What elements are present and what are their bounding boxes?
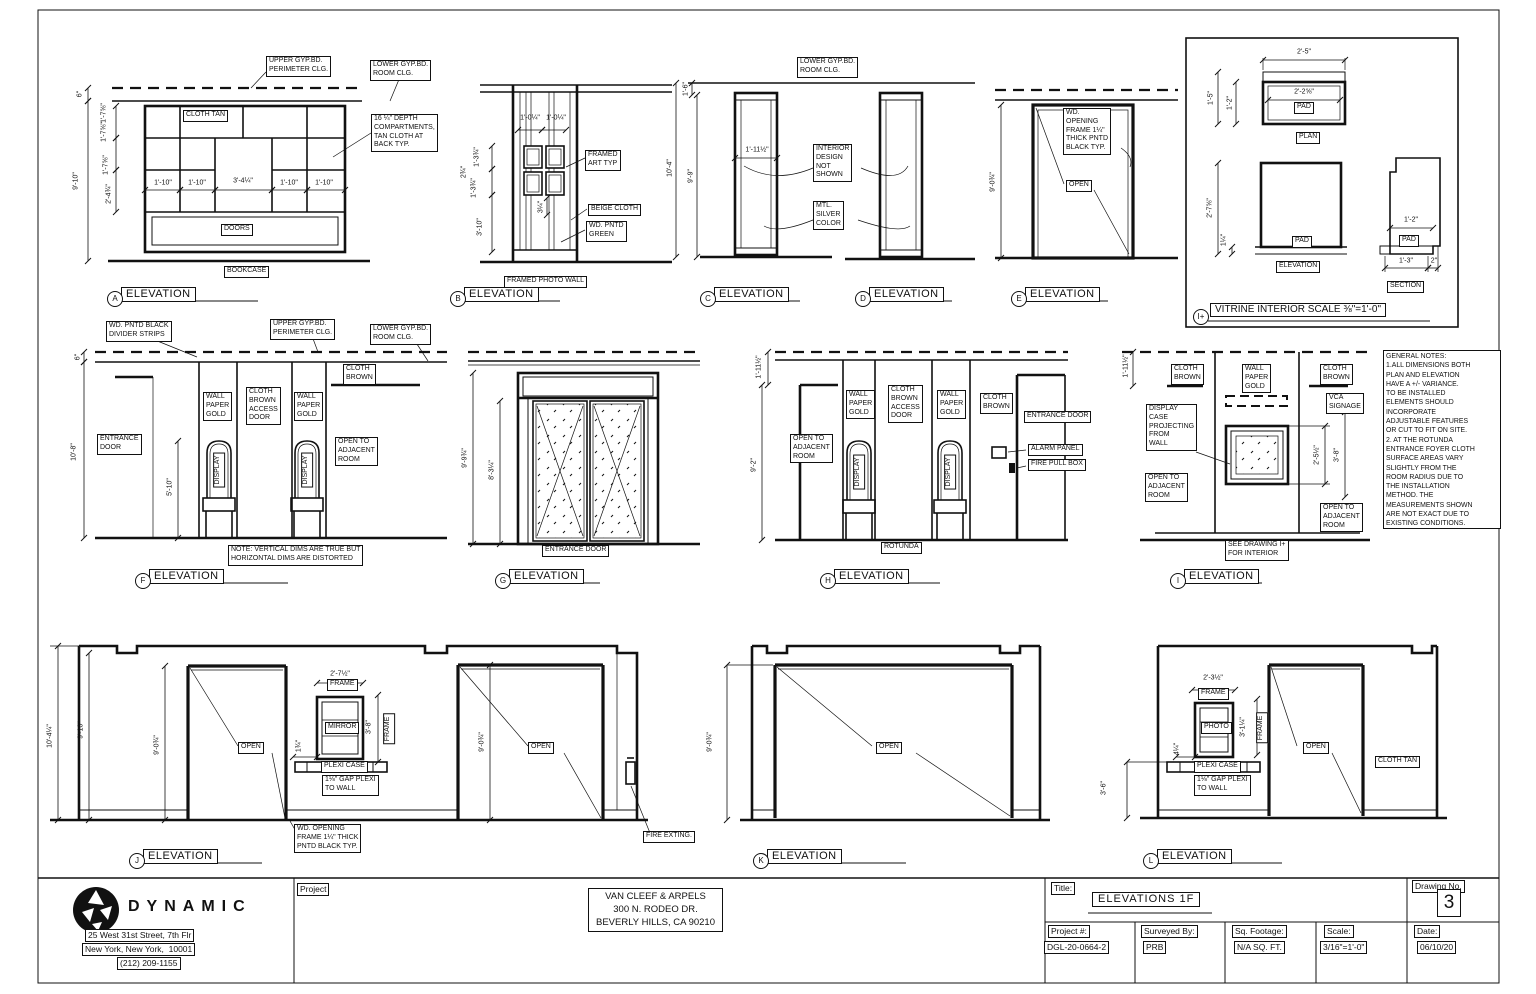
label-open-e: OPEN [1066,180,1092,192]
client-address: VAN CLEEF & ARPELS 300 N. RODEO DR. BEVE… [588,888,723,932]
dim-b-1-3b: 1'-3¾" [471,178,478,198]
dim-i-1-11: 1'-11½" [1123,354,1130,377]
dim-vit-1-2b: 1'-2" [1404,217,1418,224]
label-upper-gyp-f: UPPER GYP.BD. PERIMETER CLG. [270,319,335,340]
label-plan: PLAN [1296,132,1320,144]
dim-i-2-5: 2'-5½" [1314,445,1321,465]
dim-vit-1-2a: 1'-2" [1227,96,1234,110]
elevation-l-marker: L [1143,853,1159,869]
label-entrance-door-g: ENTRANCE DOOR [542,545,609,557]
elevation-k-marker: K [753,853,769,869]
dim-l-3-1: 3'-1¼" [1240,717,1247,737]
label-plexi-case-j: PLEXI CASE [321,761,368,773]
label-open-k: OPEN [876,742,902,754]
section-title-j: ELEVATION [143,849,218,864]
date-value: 06/10/20 [1417,941,1456,954]
elevation-b-marker: B [450,291,466,307]
title-label: Title: [1051,882,1075,895]
label-fire-pull-box: FIRE PULL BOX [1028,459,1086,471]
label-entrance-door-h: ENTRANCE DOOR [1024,411,1091,423]
elevation-h-marker: H [820,573,836,589]
label-open-adjacent-i2: OPEN TO ADJACENT ROOM [1320,503,1363,532]
label-display-case: DISPLAY CASE PROJECTING FROM WALL [1146,404,1197,451]
section-title-i: ELEVATION [1184,569,1259,584]
firm-address-1: 25 West 31st Street, 7th Flr [85,929,194,942]
section-title-k: ELEVATION [767,849,842,864]
label-access-door-h: CLOTH BROWN ACCESS DOOR [888,385,923,423]
label-open-adjacent-i1: OPEN TO ADJACENT ROOM [1145,473,1188,502]
dynamic-logo [73,887,119,933]
dim-a-1-7c: 1'-7⅝" [103,155,110,175]
elev-g-linework [468,352,700,547]
dim-vit-2-7: 2'-7⅝" [1207,198,1214,218]
label-display-h1: DISPLAY [853,454,865,489]
label-open-adjacent-h: OPEN TO ADJACENT ROOM [790,434,833,463]
dim-vit-2-2: 2'-2⅝" [1294,89,1314,96]
dim-l-3-6: 3'-6" [1101,781,1108,795]
dim-l-4-1q: 4¼" [1174,743,1181,755]
dim-b-1-0b: 1'-0¼" [546,115,566,122]
dim-g-8-3: 8'-3¼" [489,460,496,480]
label-divider-strips: WD. PNTD BLACK DIVIDER STRIPS [106,321,172,342]
label-wallpaper-gold-h1: WALL PAPER GOLD [846,390,875,419]
sheet-border [38,10,1499,983]
dim-b-3-10: 3'-10" [477,218,484,236]
label-wallpaper-gold-i: WALL PAPER GOLD [1242,364,1271,393]
label-access-door-f: CLOTH BROWN ACCESS DOOR [246,387,281,425]
elevation-g-marker: G [495,573,511,589]
label-open-adjacent-f: OPEN TO ADJACENT ROOM [335,437,378,466]
vitrine-title: VITRINE INTERIOR SCALE ⅜"=1'-0" [1210,303,1386,317]
label-wd-opening-e: WD. OPENING FRAME 1¼" THICK PNTD BLACK T… [1063,108,1111,155]
label-cloth-brown-i1: CLOTH BROWN [1171,364,1204,385]
vitrine-marker: I+ [1193,309,1209,325]
elevation-d-marker: D [855,291,871,307]
dim-a-1-7a: 1'-7⅝" [101,103,108,123]
dim-a-9-10: 9'-10" [73,172,80,190]
label-display-h2: DISPLAY [944,454,956,489]
label-frame-j-vert: FRAME [383,714,395,745]
label-open-j1: OPEN [238,742,264,754]
label-cloth-tan-a: CLOTH TAN [183,110,228,122]
dim-vit-2-5: 2'-5" [1297,49,1311,56]
label-cloth-brown-i2: CLOTH BROWN [1320,364,1353,385]
dim-cd-1-11: 1'-11½" [745,147,768,154]
elev-k-linework [724,646,1050,823]
dim-cd-1-6: 1'-6" [683,82,690,96]
label-photo: PHOTO [1201,722,1232,734]
label-f-note: NOTE: VERTICAL DIMS ARE TRUE BUT HORIZON… [228,545,363,566]
label-framed-photo-wall: FRAMED PHOTO WALL [504,276,587,288]
dim-k-9-0: 9'-0¾" [707,732,714,752]
section-title-d: ELEVATION [869,287,944,302]
dim-j-10-4: 10'-4¼" [47,724,54,748]
label-section: SECTION [1387,281,1424,293]
dim-a-3-4: 3'-4¼" [233,178,253,185]
dim-h-1-11: 1'-11½" [756,355,763,378]
sq-footage-label: Sq. Footage: [1232,925,1287,938]
firm-address-2: New York, New York, 10001 [82,943,195,956]
elevation-j-marker: J [129,853,145,869]
dim-vit-1-3: 1'-3" [1399,258,1413,265]
label-wallpaper-gold-h2: WALL PAPER GOLD [937,390,966,419]
dim-a-2-4: 2'-4¾" [106,184,113,204]
elev-b-linework [480,85,672,262]
project-no-label: Project #: [1048,925,1090,938]
section-title-b: ELEVATION [464,287,539,302]
dim-j-2-7: 2'-7½" [330,671,350,678]
label-upper-gyp-a: UPPER GYP.BD. PERIMETER CLG. [266,56,331,77]
dim-b-3-1q: 3¼" [538,201,545,213]
dim-f-5-10: 5'-10" [167,478,174,496]
section-title-l: ELEVATION [1157,849,1232,864]
label-pad-elev: PAD [1292,236,1312,248]
sheet-title: ELEVATIONS 1F [1092,892,1200,907]
label-frame-l: FRAME [1198,688,1229,700]
dim-j-9-0a: 9'-0¾" [154,735,161,755]
label-framed-art: FRAMED ART TYP [585,150,621,171]
dim-a-1-10a: 1'-10" [154,180,172,187]
dim-a-1-10b: 1'-10" [188,180,206,187]
elev-l-linework [1124,646,1447,821]
dim-a-1-7b: 1'-7⅝" [101,122,108,142]
label-rotunda: ROTUNDA [881,542,922,554]
label-beige-cloth: BEIGE CLOTH [588,204,641,216]
dim-b-1-3a: 1'-3¾" [474,147,481,167]
drawing-sheet: UPPER GYP.BD. PERIMETER CLG. LOWER GYP.B… [0,0,1536,994]
elevation-a-marker: A [107,291,123,307]
dim-g-9-9: 9'-9¾" [462,448,469,468]
label-interior-design: INTERIOR DESIGN NOT SHOWN [813,144,852,182]
general-notes: GENERAL NOTES: 1.ALL DIMENSIONS BOTH PLA… [1383,350,1501,529]
label-doors: DOORS [221,224,253,236]
label-wallpaper-gold-f2: WALL PAPER GOLD [294,392,323,421]
dim-f-10-8: 10'-8" [71,443,78,461]
elevation-f-marker: F [135,573,151,589]
dim-a-1-10c: 1'-10" [280,180,298,187]
label-plexi-case-l: PLEXI CASE [1194,761,1241,773]
section-title-f: ELEVATION [149,569,224,584]
label-lower-gyp-f: LOWER GYP.BD. ROOM CLG. [370,324,431,345]
scale-value: 3/16"=1'-0" [1320,941,1367,954]
dim-j-1-3q: 1¾" [296,740,303,752]
dim-cd-9-9: 9'-9" [688,169,695,183]
scale-label: Scale: [1324,925,1354,938]
dim-f-6in: 6" [75,354,82,360]
label-vca-signage: VCA SIGNAGE [1326,393,1364,414]
section-title-a: ELEVATION [121,287,196,302]
date-label: Date: [1414,925,1440,938]
label-frame-l-vert: FRAME [1256,713,1268,744]
section-title-g: ELEVATION [509,569,584,584]
label-depth-note: 16 ¼" DEPTH COMPARTMENTS, TAN CLOTH AT B… [371,114,438,152]
drawing-no: 3 [1437,889,1461,917]
dim-h-9-2: 9'-2" [751,458,758,472]
section-title-c: ELEVATION [714,287,789,302]
label-cloth-brown-h: CLOTH BROWN [980,393,1013,414]
section-title-h: ELEVATION [834,569,909,584]
section-title-e: ELEVATION [1025,287,1100,302]
label-gap-plexi-l: 1⅛" GAP PLEXI TO WALL [1194,775,1251,796]
label-wd-opening-j: WD. OPENING FRAME 1¼" THICK PNTD BLACK T… [294,824,361,853]
label-frame-j: FRAME [327,679,358,691]
label-cloth-tan-l: CLOTH TAN [1375,756,1420,768]
label-gap-plexi-j: 1⅛" GAP PLEXI TO WALL [322,775,379,796]
project-label: Project [297,883,329,896]
label-see-drawing: SEE DRAWING I+ FOR INTERIOR [1225,540,1289,561]
dim-l-2-3: 2'-3½" [1203,675,1223,682]
label-pad-plan: PAD [1294,102,1314,114]
elevation-i-marker: I [1170,573,1186,589]
label-mtl-silver: MTL. SILVER COLOR [813,201,844,230]
dim-vit-1-quarter: 1¼" [1221,234,1228,246]
surveyed-by-value: PRB [1143,941,1166,954]
dim-i-3-8: 3'-8" [1334,448,1341,462]
firm-name: DYNAMIC [128,898,252,916]
dim-vit-2in: 2" [1431,258,1437,265]
label-open-j2: OPEN [528,742,554,754]
elevation-c-marker: C [700,291,716,307]
firm-phone: (212) 209-1155 [117,957,181,970]
label-cloth-brown-f: CLOTH BROWN [343,364,376,385]
dim-vit-1-5: 1'-5" [1208,91,1215,105]
elevation-e-marker: E [1011,291,1027,307]
label-display-f2: DISPLAY [301,452,313,487]
sq-footage-value: N/A SQ. FT. [1234,941,1285,954]
label-mirror: MIRROR [325,722,359,734]
label-alarm-panel: ALARM PANEL [1028,444,1083,456]
dim-b-2-3q: 2¾" [461,166,468,178]
project-no-value: DGL-20-0664-2 [1044,941,1109,954]
label-pad-section: PAD [1399,235,1419,247]
label-bookcase: BOOKCASE [224,266,269,278]
surveyed-by-label: Surveyed By: [1141,925,1198,938]
dim-b-1-0a: 1'-0¼" [520,115,540,122]
dim-e-9-0: 9'-0¾" [990,172,997,192]
label-display-f1: DISPLAY [213,452,225,487]
label-fire-exting: FIRE EXTING. [643,831,695,843]
label-lower-gyp-a: LOWER GYP.BD. ROOM CLG. [370,60,431,81]
dim-j-9-10: 9'-10" [78,721,85,739]
label-entrance-door-f: ENTRANCE DOOR [97,434,142,455]
label-wd-pntd-green: WD. PNTD GREEN [586,221,627,242]
label-open-l: OPEN [1303,742,1329,754]
label-wallpaper-gold-f1: WALL PAPER GOLD [203,392,232,421]
dim-j-9-0b: 9'-0¾" [479,732,486,752]
dim-a-6in: 6" [77,91,84,97]
label-vit-elevation: ELEVATION [1276,261,1320,273]
dim-j-3-8: 3'-8" [366,720,373,734]
label-lower-gyp-cd: LOWER GYP.BD. ROOM CLG. [797,57,858,78]
dim-a-1-10d: 1'-10" [315,180,333,187]
dim-cd-10-4: 10'-4" [667,159,674,177]
